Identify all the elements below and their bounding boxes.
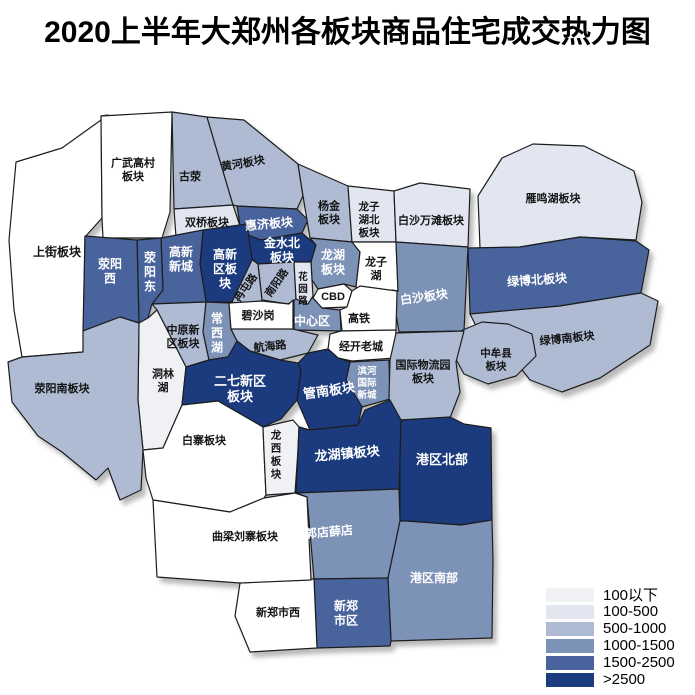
region-label-花园路: 花园路	[298, 271, 308, 307]
legend-item: 100-500	[546, 603, 675, 620]
region-label-杨金板块: 杨金板块	[318, 198, 341, 226]
region-白沙板块	[392, 242, 468, 332]
region-label-雁鸣湖板块: 雁鸣湖板块	[526, 191, 582, 205]
legend-item: >2500	[546, 671, 675, 688]
region-label-高铁: 高铁	[348, 311, 370, 325]
region-label-新郑市区: 新郑市区	[334, 598, 358, 628]
region-label-CBD: CBD	[321, 291, 345, 303]
region-label-碧沙岗: 碧沙岗	[241, 308, 275, 322]
legend: 100以下100-500500-10001000-15001500-2500>2…	[546, 586, 675, 688]
legend-item: 100以下	[546, 586, 675, 603]
region-港区北部	[400, 417, 492, 525]
legend-label: >2500	[603, 671, 645, 688]
region-label-龙子湖北板块: 龙子湖北板块	[358, 200, 380, 239]
region-label-中心区: 中心区	[294, 313, 330, 328]
legend-label: 1500-2500	[603, 654, 675, 671]
region-label-荥阳东: 荥阳东	[144, 250, 156, 294]
region-label-新郑市西: 新郑市西	[256, 605, 300, 619]
legend-item: 500-1000	[546, 620, 675, 637]
region-label-港区南部: 港区南部	[410, 570, 458, 585]
region-label-经开老城: 经开老城	[339, 339, 383, 353]
region-label-滨河国际新城: 滨河国际新城	[357, 365, 377, 401]
legend-label: 100-500	[603, 603, 658, 620]
region-label-高新新城: 高新新城	[169, 244, 193, 274]
region-label-双桥板块: 双桥板块	[185, 215, 230, 229]
legend-swatch	[546, 588, 594, 602]
region-label-常西湖: 常西湖	[211, 311, 223, 355]
region-label-荥阳南板块: 荥阳南板块	[35, 381, 91, 395]
legend-label: 1000-1500	[603, 637, 675, 654]
region-label-中原新区板块: 中原新区板块	[167, 322, 201, 350]
legend-swatch	[546, 622, 594, 636]
region-label-白沙万滩板块: 白沙万滩板块	[398, 213, 465, 227]
region-label-上街板块: 上街板块	[33, 244, 82, 259]
legend-item: 1000-1500	[546, 637, 675, 654]
legend-label: 100以下	[603, 584, 658, 605]
legend-swatch	[546, 656, 594, 670]
legend-label: 500-1000	[603, 620, 666, 637]
region-label-龙湖板块: 龙湖板块	[321, 247, 346, 277]
legend-swatch	[546, 605, 594, 619]
legend-swatch	[546, 639, 594, 653]
legend-item: 1500-2500	[546, 654, 675, 671]
region-label-白寨板块: 白寨板块	[182, 433, 227, 447]
legend-swatch	[546, 673, 594, 687]
region-label-曲梁刘寨板块: 曲梁刘寨板块	[212, 529, 279, 543]
region-label-港区北部: 港区北部	[416, 452, 468, 467]
region-label-古荥: 古荥	[179, 169, 201, 183]
